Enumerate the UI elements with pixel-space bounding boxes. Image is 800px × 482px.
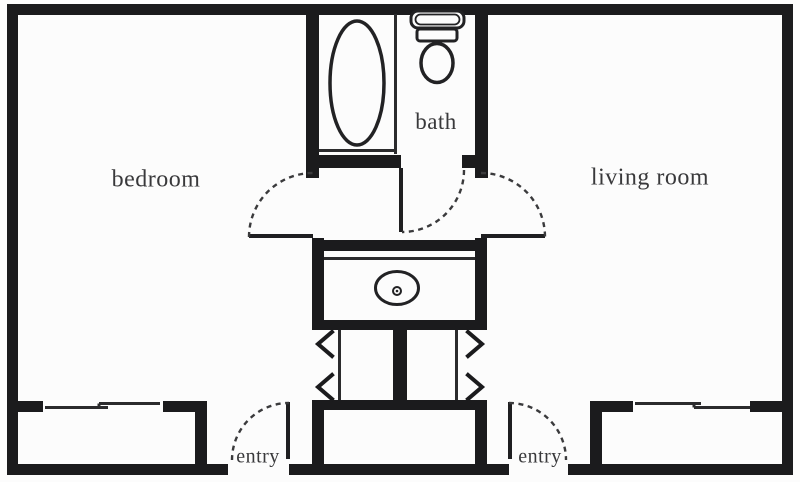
living-room-label: living room <box>591 165 709 192</box>
wall-bay-right-a <box>602 401 633 412</box>
floor-plan: bedroom bath living room entry entry <box>0 0 800 482</box>
wall-entry-right-outer <box>590 401 602 475</box>
closet-right-bifold-icon <box>468 332 482 356</box>
tub-front-line <box>319 149 397 152</box>
living-room-door-swing-arc <box>481 173 545 237</box>
wall-closet-top <box>312 320 487 330</box>
toilet-bowl-icon <box>421 44 453 83</box>
wall-bath-living-divider <box>475 14 488 178</box>
entry-left-door-leaf <box>286 402 290 459</box>
doors <box>232 168 566 460</box>
floor-plan-drawing <box>0 0 800 482</box>
wall-closet-bottom <box>312 400 487 410</box>
bedroom-label: bedroom <box>112 167 201 194</box>
closet-right-bifold-icon <box>468 375 482 399</box>
wall-bath-bottom-left <box>319 155 401 168</box>
sink-drain-dot <box>396 290 399 293</box>
wall-entry-left-outer <box>195 401 207 475</box>
tub-partition-line <box>394 14 397 154</box>
bathtub-icon <box>330 21 384 145</box>
wall-vanity-top <box>324 240 475 251</box>
wall-vanity-left-post <box>312 238 324 330</box>
wall-bath-bottom-stub <box>462 155 475 168</box>
bedroom-door-leaf <box>249 234 313 238</box>
entry-right-label: entry <box>518 446 562 469</box>
toilet-seat-icon <box>417 29 457 41</box>
bedroom-door-swing-arc <box>249 173 313 237</box>
living-room-window-icon <box>635 404 750 408</box>
living-room-door-leaf <box>481 234 545 238</box>
wall-bay-left-a <box>18 401 43 412</box>
wall-vanity-right-post <box>475 238 487 330</box>
toilet-tank-icon <box>411 11 464 28</box>
wall-entry-right-inner <box>475 410 487 475</box>
closet-left-bifold-icon <box>318 332 332 356</box>
bath-door-swing-arc <box>402 170 464 232</box>
wall-bottom-left <box>7 464 228 475</box>
wall-closet-column <box>393 330 407 400</box>
bedroom-window-icon <box>45 404 160 408</box>
wall-bay-right-b <box>750 401 793 412</box>
vanity-counter-line <box>324 257 475 260</box>
bath-label: bath <box>415 109 457 135</box>
wall-bedroom-bath-divider <box>306 14 319 178</box>
wall-entry-left-inner <box>312 410 324 475</box>
entry-left-label: entry <box>236 446 280 469</box>
entry-right-door-leaf <box>508 402 512 459</box>
closet-right-track-line <box>455 330 458 400</box>
bath-door-leaf <box>399 168 403 232</box>
wall-top <box>7 4 793 15</box>
closet-left-bifold-icon <box>318 375 332 399</box>
wall-left <box>7 4 18 475</box>
closet-left-track-line <box>338 330 341 400</box>
wall-bay-left-b <box>163 401 207 412</box>
